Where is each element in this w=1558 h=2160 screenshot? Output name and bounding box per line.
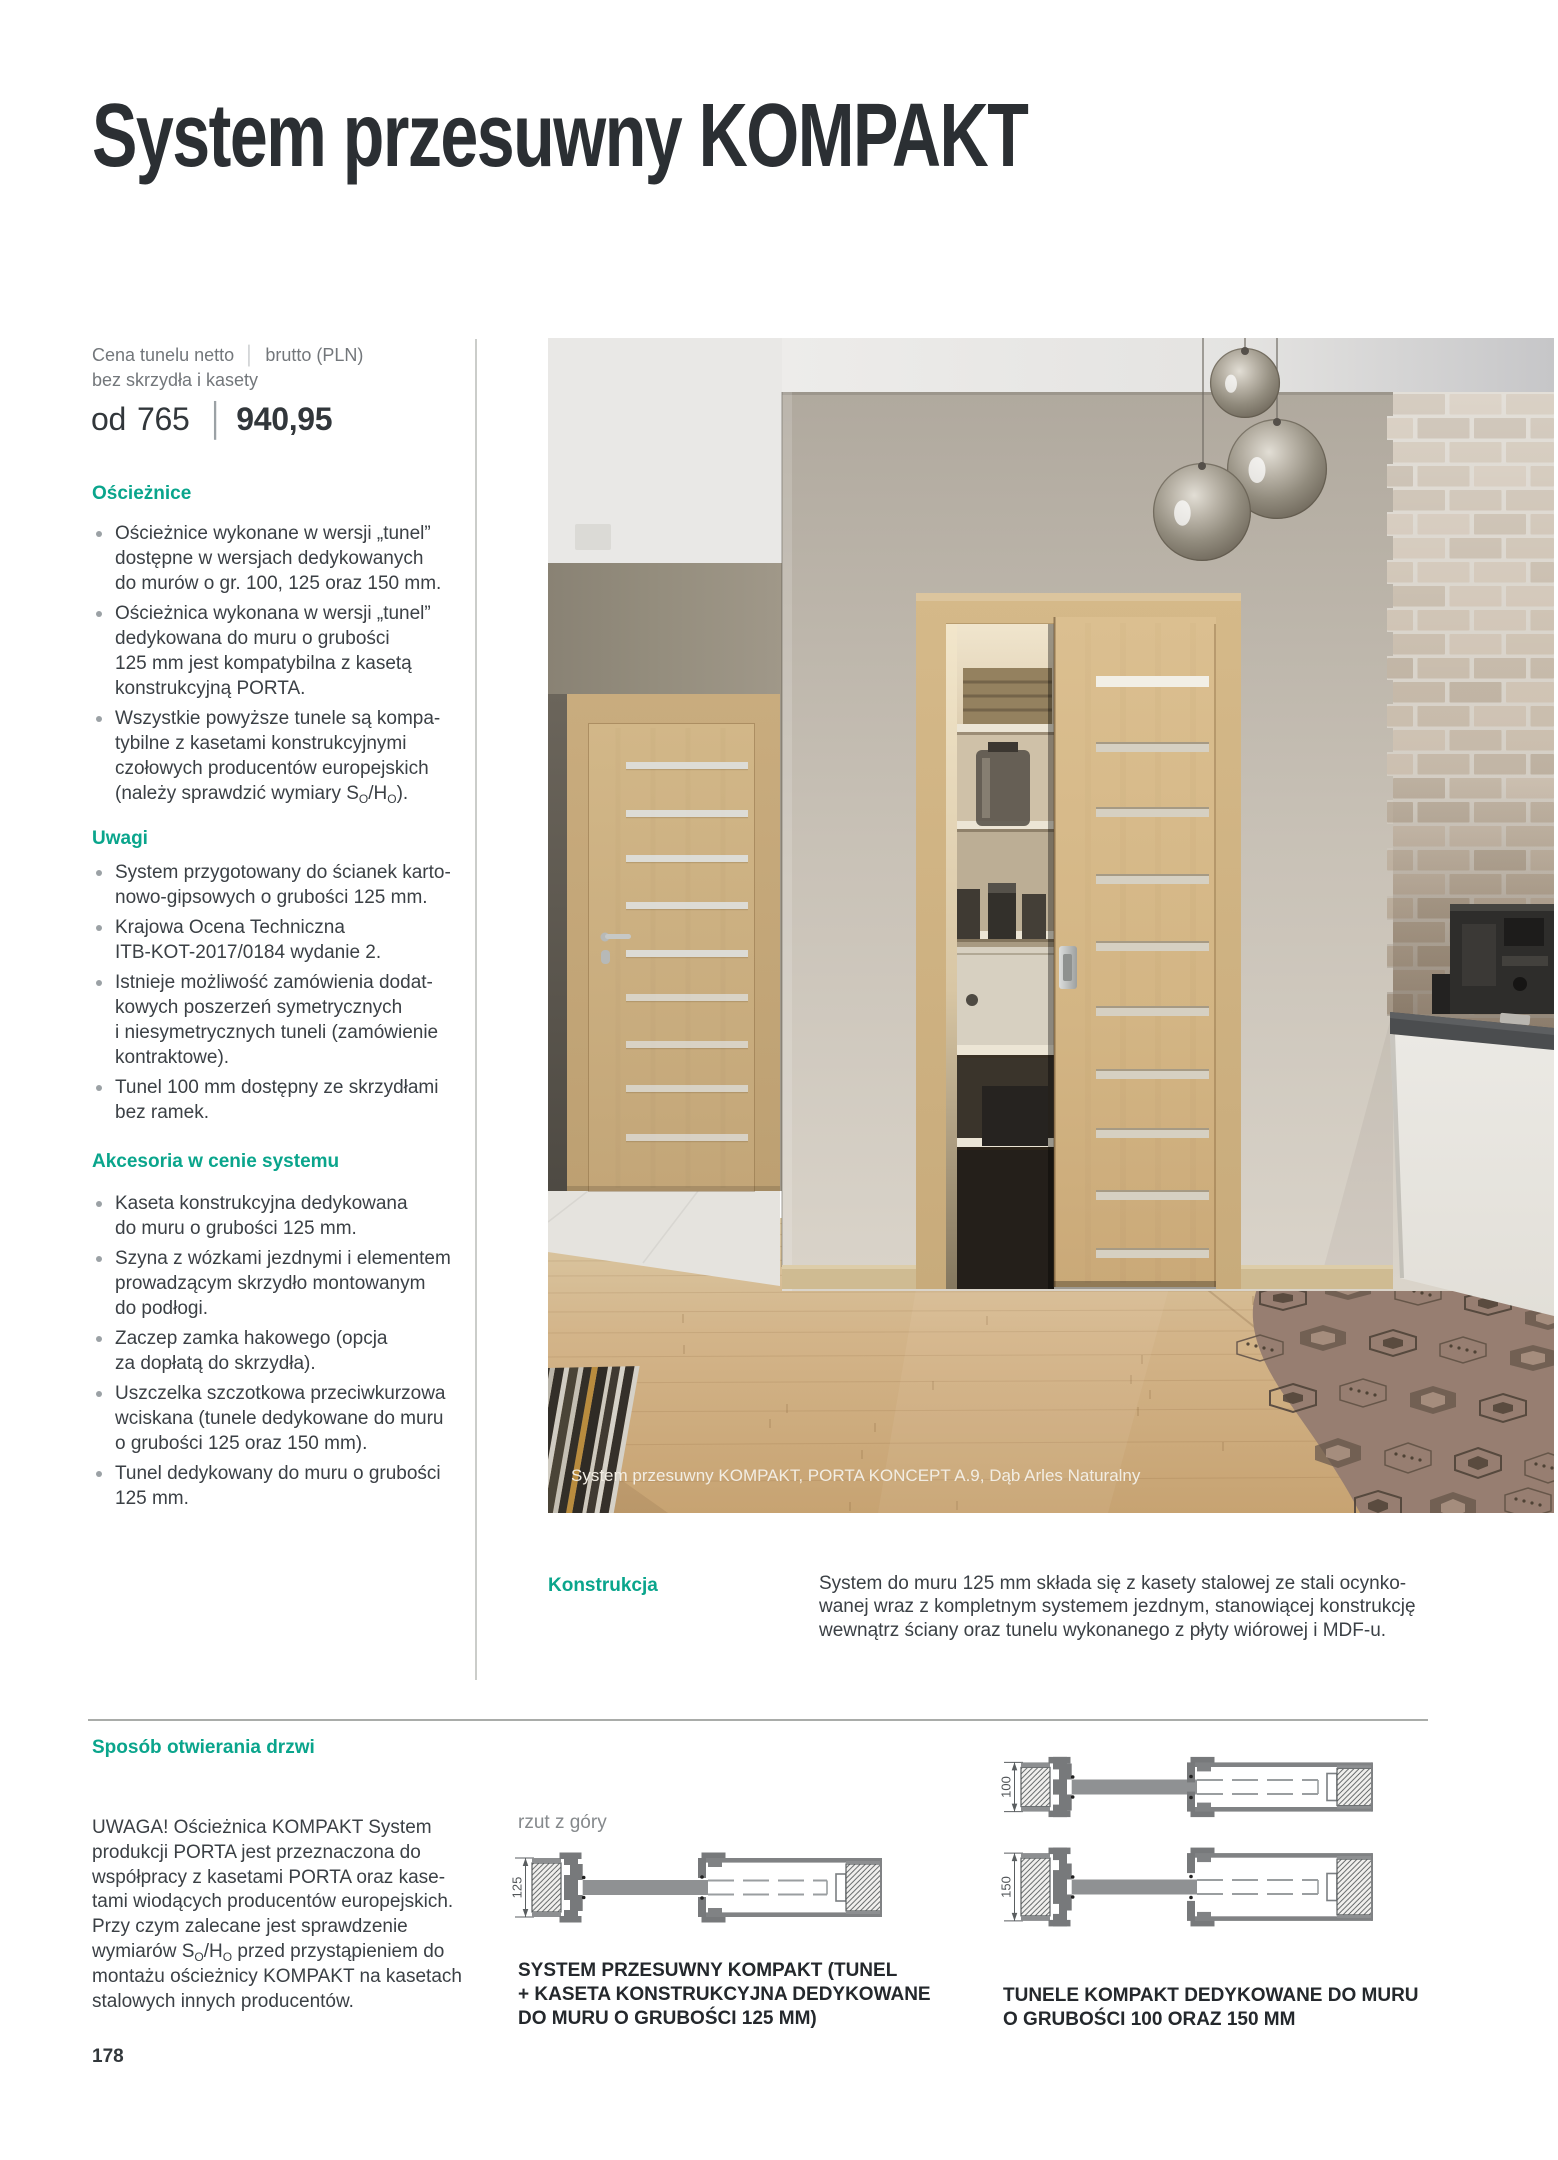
svg-text:150: 150: [999, 1876, 1014, 1898]
svg-text:125: 125: [510, 1877, 525, 1899]
svg-text:100: 100: [999, 1776, 1014, 1798]
